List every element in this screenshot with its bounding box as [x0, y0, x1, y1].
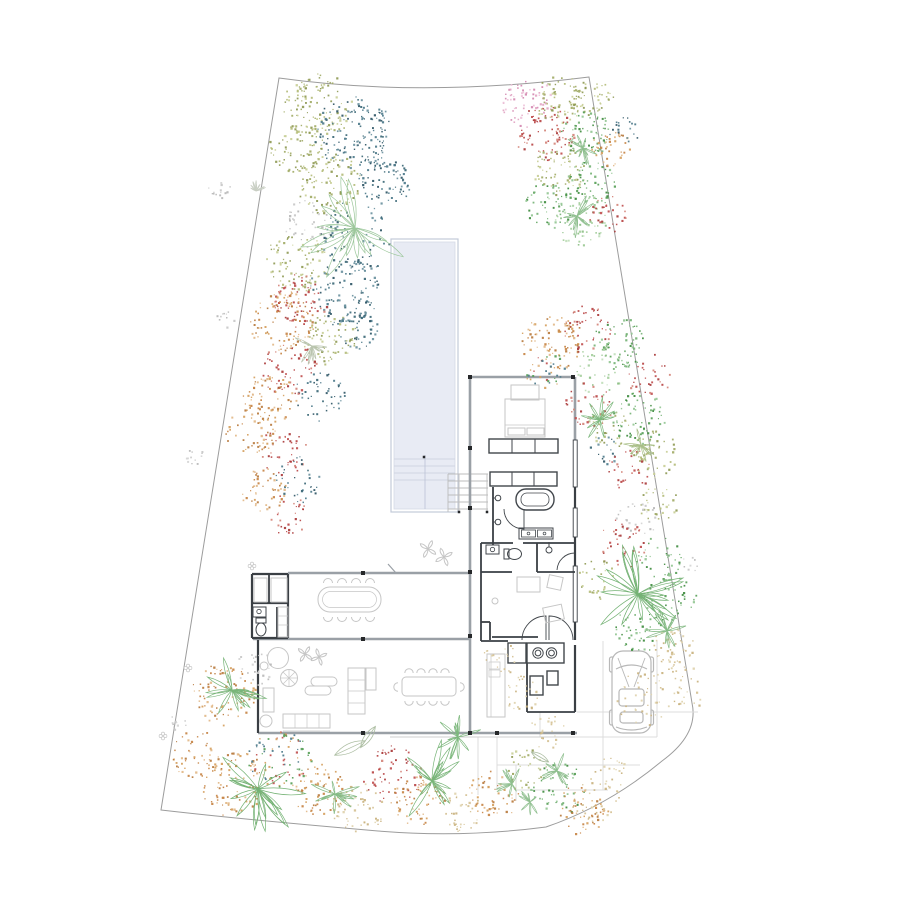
- appliance: [547, 671, 558, 685]
- toilet: [256, 623, 266, 636]
- fan-palm: [519, 791, 538, 815]
- column-dot: [571, 375, 575, 379]
- sink: [486, 545, 499, 554]
- fan-palm: [251, 180, 266, 191]
- tree-canopy: [613, 393, 666, 445]
- sofa: [283, 714, 330, 728]
- tree-canopy: [292, 764, 343, 815]
- plan-layers: [161, 77, 698, 834]
- car-body: [612, 651, 651, 733]
- sink: [253, 607, 266, 617]
- coffee-table: [311, 677, 337, 686]
- tree-canopy: [595, 758, 626, 789]
- burner: [533, 648, 543, 658]
- butterfly-chair: [311, 649, 327, 665]
- tree-canopy: [508, 749, 547, 788]
- tree-canopy: [522, 316, 581, 369]
- leaf: [530, 749, 550, 764]
- tree-canopy: [594, 319, 644, 370]
- tree-canopy: [577, 345, 625, 395]
- bathtub: [516, 489, 554, 510]
- fan-palm: [597, 545, 683, 628]
- tree-canopy: [217, 311, 236, 328]
- column-dot: [468, 634, 472, 638]
- column-dot: [468, 570, 472, 574]
- tree-canopy: [186, 450, 204, 465]
- site-plan-canvas: [0, 0, 900, 900]
- tree-canopy: [391, 776, 446, 825]
- column-dot: [458, 511, 461, 514]
- flower-icon: [159, 732, 167, 740]
- wardrobe: [490, 472, 557, 486]
- butterfly-chair: [436, 548, 452, 565]
- tree-canopy: [250, 291, 314, 354]
- tree-canopy: [276, 456, 321, 503]
- butterfly-chair: [298, 647, 311, 662]
- pillow: [527, 428, 544, 435]
- tree-canopy: [337, 308, 378, 350]
- fan-palm: [223, 757, 306, 831]
- flower-icon: [248, 562, 256, 570]
- tree-canopy: [636, 538, 681, 581]
- window: [573, 440, 577, 487]
- tree-canopy: [266, 236, 327, 291]
- column-dot: [423, 456, 426, 459]
- tree-canopy: [225, 407, 275, 453]
- tree-canopy: [363, 745, 422, 801]
- site-plan-page: [0, 0, 900, 900]
- tree-canopy: [315, 96, 390, 169]
- pool-water: [394, 242, 455, 509]
- toilet: [508, 549, 522, 560]
- column-dot: [495, 731, 499, 735]
- tree-canopy: [300, 154, 361, 215]
- column-dot: [468, 446, 472, 450]
- window: [573, 566, 577, 622]
- tree-canopy: [332, 783, 383, 832]
- coffee-table: [305, 686, 331, 695]
- lounge-chair: [260, 715, 272, 727]
- flower-icon: [184, 664, 192, 672]
- column-dot: [486, 511, 489, 514]
- dining-table: [402, 677, 456, 696]
- tree-canopy: [538, 77, 583, 125]
- kitchen-island: [487, 654, 505, 717]
- fan-palm: [563, 196, 593, 238]
- tree-canopy: [609, 117, 638, 142]
- tree-canopy: [208, 182, 231, 199]
- tree-canopy: [508, 676, 538, 710]
- tree-canopy: [310, 259, 379, 325]
- tree-canopy: [629, 354, 671, 395]
- tree-canopy: [503, 81, 552, 128]
- tree-canopy: [572, 778, 620, 822]
- tree-canopy: [284, 73, 353, 140]
- tree-canopy: [565, 382, 611, 427]
- fan-palm: [581, 397, 614, 438]
- swimming-pool: [391, 239, 458, 512]
- tree-canopy: [269, 125, 322, 173]
- tree-canopy: [589, 196, 626, 232]
- tree-canopy: [518, 107, 576, 161]
- shelf: [278, 607, 288, 637]
- burner: [546, 648, 556, 658]
- column-dot: [361, 571, 365, 575]
- pillow: [508, 428, 525, 435]
- tree-canopy: [674, 676, 702, 707]
- column-dot: [361, 637, 365, 641]
- tree-canopy: [297, 373, 346, 422]
- outdoor-dining-table: [318, 587, 381, 612]
- tree-canopy: [242, 468, 286, 511]
- tree-canopy: [526, 350, 566, 389]
- tree-canopy: [683, 557, 698, 571]
- door-swing: [504, 509, 524, 529]
- desk: [517, 577, 540, 592]
- planter: [263, 688, 274, 712]
- window: [573, 508, 577, 537]
- closet: [271, 578, 287, 602]
- closet: [254, 578, 267, 602]
- leaf: [358, 724, 379, 749]
- column-dot: [468, 731, 472, 735]
- tree-canopy: [445, 793, 479, 832]
- column-dot: [468, 375, 472, 379]
- tree-canopy: [271, 495, 305, 533]
- tree-canopy: [359, 152, 411, 205]
- chair: [547, 575, 563, 591]
- column-dot: [571, 731, 575, 735]
- tree-canopy: [567, 162, 616, 209]
- wardrobe: [489, 439, 558, 453]
- door-swing: [557, 553, 575, 570]
- parasol-table: [281, 670, 298, 687]
- tree-canopy: [591, 132, 631, 167]
- tree-canopy: [525, 184, 571, 229]
- column-dot: [361, 731, 365, 735]
- tree-canopy: [657, 640, 695, 681]
- fan-palm: [301, 177, 403, 277]
- column-dot: [468, 506, 472, 510]
- tree-canopy: [238, 654, 271, 686]
- butterfly-chair: [420, 541, 435, 558]
